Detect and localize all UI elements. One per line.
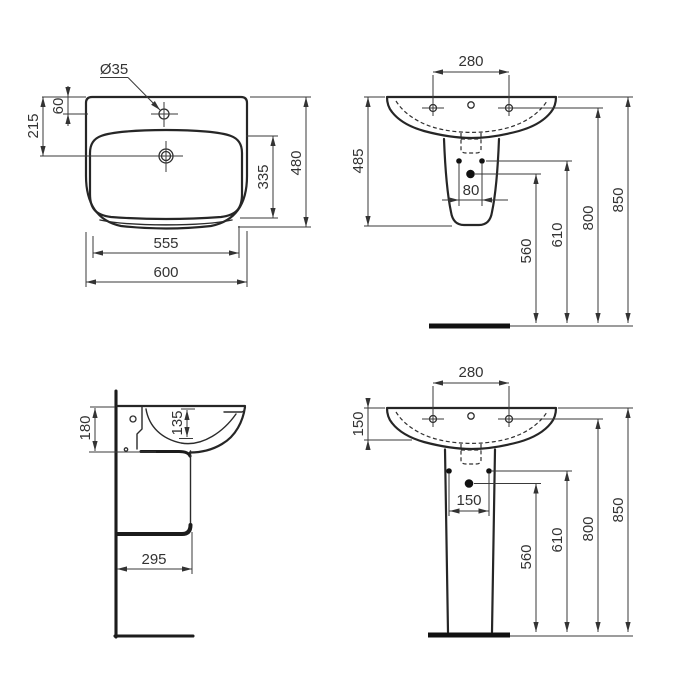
dim-edge-to-drain: 215 [25,113,42,138]
washbasin-dimension-drawing: Ø35 60 215 335 480 [0,0,700,700]
fixing-hole-left [456,158,462,164]
dim-back-height: 180 [77,415,94,440]
dim-edge-to-tap-hole: 60 [50,98,67,115]
dim-rim-height: 150 [350,411,367,436]
dim-tap-hole-spacing: 280 [458,364,483,381]
top-view-dimensions: Ø35 60 215 335 480 [25,61,311,287]
front-semi-dimensions: 280 485 80 560 610 800 8 [350,53,633,323]
rim-front-profile [190,407,245,453]
small-hole-section [124,448,127,451]
overflow-mark [468,102,474,108]
semi-pedestal-bottom [117,525,191,534]
trap-outlet [466,170,475,179]
dim-height: 485 [350,148,367,173]
dim-fixing-spacing: 80 [463,182,480,199]
fixing-hole-right [479,158,485,164]
dim-h800: 800 [580,516,597,541]
technical-drawing-page: Ø35 60 215 335 480 [0,0,700,700]
dim-bowl-front: 335 [255,164,272,189]
side-view-dimensions: 180 135 295 [77,407,195,574]
front-pedestal-dimensions: 280 150 150 560 610 800 [350,364,633,632]
back-bracket-section [137,406,142,449]
dim-h560: 560 [518,544,535,569]
dim-tap-hole-spacing: 280 [458,53,483,70]
trap-outlet [465,479,474,488]
hidden-drain-outline [461,444,481,464]
basin-front-edge-line [100,220,232,225]
hidden-bowl-line [396,412,547,443]
top-view: Ø35 60 215 335 480 [25,61,311,287]
leader-arrow [128,78,160,111]
dim-h560: 560 [518,238,535,263]
fixing-hole-left [446,468,452,474]
dim-h850: 850 [610,187,627,212]
dim-depth: 480 [288,150,305,175]
overflow-mark [468,413,474,419]
dim-wall-to-front: 295 [141,551,166,568]
dim-tap-hole-dia: Ø35 [100,61,128,78]
fixing-hole-right [486,468,492,474]
pedestal-right-edge [492,450,495,633]
hidden-drain-outline [461,133,481,153]
dim-bowl-depth: 135 [169,410,186,435]
dim-h610: 610 [549,527,566,552]
front-view-semi-pedestal: 280 485 80 560 610 800 8 [350,53,633,326]
top-view-outlines [86,97,247,229]
fixing-hole-section [130,416,136,422]
pedestal-left-edge [445,450,448,633]
dim-fixing-spacing: 150 [456,492,481,509]
dim-bowl-width: 555 [153,235,178,252]
rim-edge-line [224,408,245,412]
dim-h800: 800 [580,205,597,230]
front-view-full-pedestal: 280 150 150 560 610 800 [350,364,633,636]
hidden-bowl-line [396,101,547,132]
dim-h610: 610 [549,222,566,247]
dim-width: 600 [153,264,178,281]
dim-h850: 850 [610,497,627,522]
side-view: 180 135 295 [77,391,245,637]
